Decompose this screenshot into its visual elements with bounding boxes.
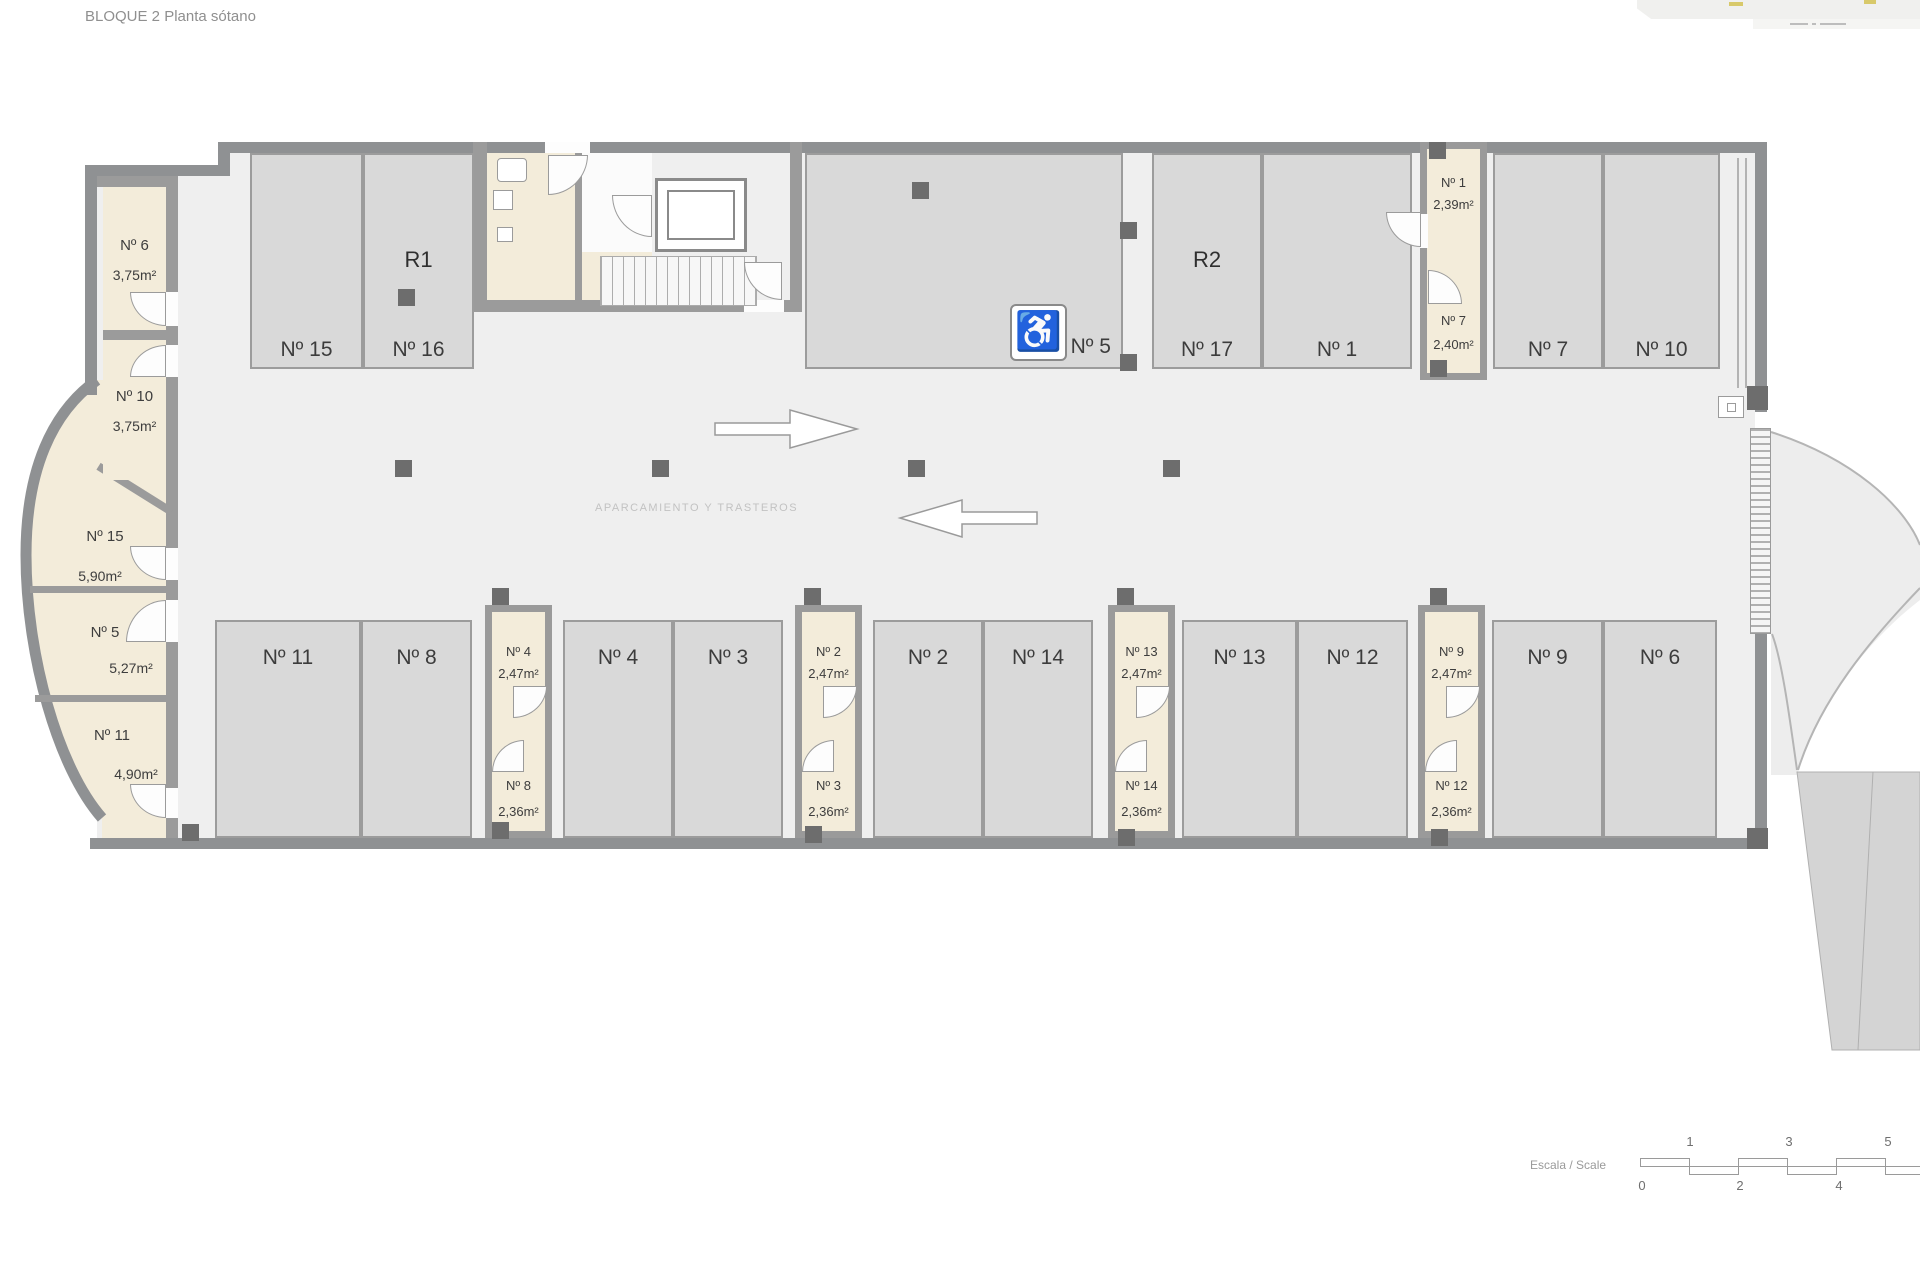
scale-tick: 5 [1884,1134,1891,1149]
storage-label: Nº 5 [40,624,170,641]
scale-tick: 4 [1835,1178,1842,1193]
storage-label: Nº 11 [45,727,179,744]
scale-segment [1787,1166,1837,1175]
partial-logo-banner [1637,0,1920,19]
scale-segment [1836,1158,1886,1167]
scale-tick: 1 [1686,1134,1693,1149]
storage-label: Nº 6 [103,237,166,254]
floorplan-canvas: BLOQUE 2 Planta sótano [0,0,1920,1280]
storage-label: Nº 10 [103,388,166,405]
scale-label: Escala / Scale [1530,1158,1606,1172]
logo-small-text [1790,23,1808,25]
storage-label: Nº 15 [40,528,170,545]
scale-tick: 3 [1785,1134,1792,1149]
scale-segment [1689,1166,1739,1175]
direction-arrow-left [900,500,1037,537]
storage-area: 5,90m² [30,568,170,584]
scale-segment [1640,1158,1690,1167]
storage-area: 5,27m² [66,660,196,676]
scale-tick: 0 [1638,1178,1645,1193]
direction-arrow-right [715,410,857,448]
scale-segment [1738,1158,1788,1167]
logo-small-text [1820,23,1846,25]
scale-tick: 2 [1736,1178,1743,1193]
storage-area: 3,75m² [103,418,166,434]
scale-segment [1885,1166,1920,1175]
direction-arrows [0,0,1920,1280]
storage-area: 3,75m² [103,267,166,283]
zone-title: APARCAMIENTO Y TRASTEROS [595,502,798,514]
logo-small-text [1812,23,1816,25]
logo-accent-mark [1729,2,1743,6]
page-title: BLOQUE 2 Planta sótano [85,8,256,25]
logo-accent-mark [1864,0,1876,4]
storage-area: 4,90m² [70,766,202,782]
